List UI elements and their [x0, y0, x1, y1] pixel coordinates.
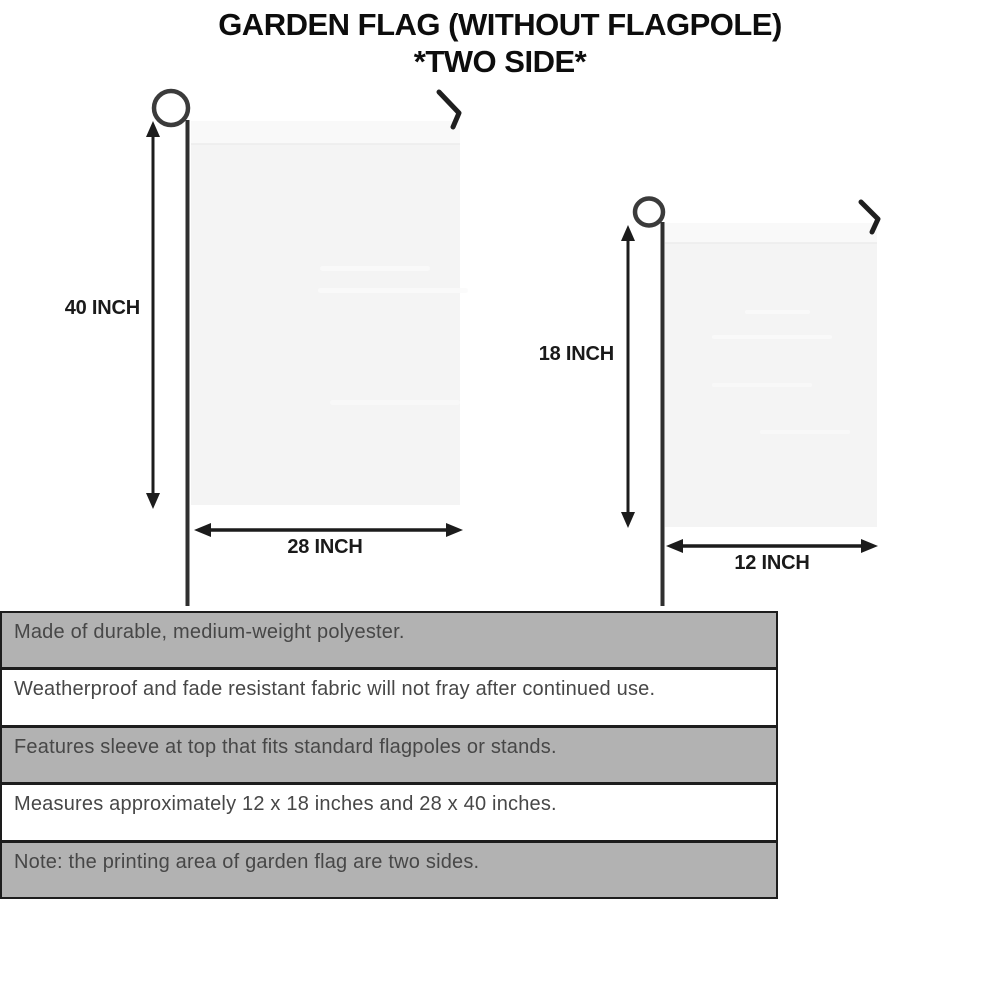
height-arrow-large [146, 121, 160, 509]
flag-size-diagram [0, 0, 1000, 611]
product-info-image: GARDEN FLAG (WITHOUT FLAGPOLE) *TWO SIDE… [0, 0, 1000, 1000]
flag-canvas-large [191, 121, 460, 505]
fabric-streak [318, 288, 468, 293]
small-flag-group [621, 199, 878, 607]
large-flag-width-label: 28 INCH [230, 536, 420, 559]
flagpole-loop-small [635, 199, 663, 226]
flagpole-loop-large [154, 91, 188, 125]
feature-row-sleeve: Features sleeve at top that fits standar… [2, 728, 776, 785]
fabric-streak [712, 335, 832, 339]
fabric-streak [330, 400, 460, 405]
small-flag-width-label: 12 INCH [677, 552, 867, 575]
feature-row-weatherproof: Weatherproof and fade resistant fabric w… [2, 670, 776, 727]
feature-row-note: Note: the printing area of garden flag a… [2, 843, 776, 897]
feature-row-measures: Measures approximately 12 x 18 inches an… [2, 785, 776, 842]
feature-row-material: Made of durable, medium-weight polyester… [2, 613, 776, 670]
fabric-streak [745, 310, 810, 314]
large-flag-height-label: 40 INCH [48, 297, 140, 320]
fabric-streak [712, 383, 812, 387]
small-flag-height-label: 18 INCH [522, 343, 614, 366]
width-arrow-small [666, 539, 878, 553]
flag-sleeve-small [665, 223, 877, 243]
height-arrow-small [621, 225, 635, 528]
large-flag-group [146, 91, 468, 606]
feature-table: Made of durable, medium-weight polyester… [0, 611, 778, 899]
flag-canvas-small [665, 223, 877, 527]
fabric-streak [760, 430, 850, 434]
fabric-streak [320, 266, 430, 271]
width-arrow-large [194, 523, 463, 537]
flag-sleeve-large [191, 121, 460, 144]
